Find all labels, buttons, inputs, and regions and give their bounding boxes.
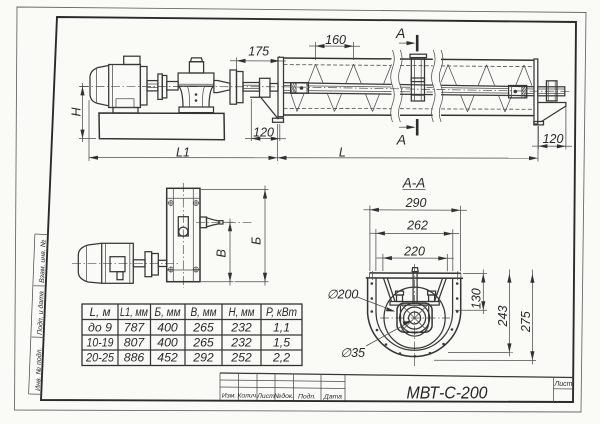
svg-text:175: 175 — [248, 44, 269, 58]
svg-text:В, мм: В, мм — [191, 305, 217, 319]
svg-text:Изм.: Изм. — [222, 393, 237, 400]
svg-text:Колич.: Колич. — [237, 393, 258, 400]
svg-text:Б: Б — [250, 237, 264, 245]
svg-text:Дата: Дата — [323, 394, 342, 401]
svg-text:Н: Н — [70, 107, 84, 117]
svg-text:Н, мм: Н, мм — [229, 305, 255, 319]
svg-text:L, м: L, м — [90, 305, 112, 319]
svg-text:1,1: 1,1 — [273, 321, 290, 335]
svg-text:Б, мм: Б, мм — [155, 305, 181, 319]
svg-text:452: 452 — [157, 351, 178, 365]
svg-text:220: 220 — [403, 244, 425, 258]
svg-text:400: 400 — [157, 336, 178, 350]
svg-text:МВТ-С-200: МВТ-С-200 — [407, 383, 488, 403]
svg-text:120: 120 — [543, 132, 564, 146]
svg-text:Р, кВт: Р, кВт — [266, 305, 297, 319]
svg-text:265: 265 — [192, 321, 214, 335]
svg-text:Инв. № подл.: Инв. № подл. — [34, 347, 44, 391]
svg-text:В: В — [215, 249, 229, 257]
svg-text:886: 886 — [124, 351, 145, 365]
svg-text:130: 130 — [470, 288, 484, 309]
svg-text:232: 232 — [230, 336, 252, 350]
svg-text:787: 787 — [124, 321, 146, 335]
svg-text:160: 160 — [325, 33, 346, 47]
svg-text:∅35: ∅35 — [340, 346, 365, 360]
svg-text:до 9: до 9 — [88, 321, 112, 335]
svg-text:Подп.: Подп. — [298, 392, 316, 400]
svg-text:Лист: Лист — [553, 381, 572, 388]
svg-text:807: 807 — [124, 336, 146, 350]
svg-text:292: 292 — [192, 351, 214, 365]
svg-text:265: 265 — [192, 336, 214, 350]
svg-text:А: А — [396, 131, 406, 147]
svg-text:А: А — [395, 25, 405, 41]
svg-text:Лист: Лист — [256, 393, 275, 400]
svg-text:L1, мм: L1, мм — [120, 305, 148, 319]
svg-text:243: 243 — [496, 306, 510, 328]
svg-text:400: 400 — [157, 321, 178, 335]
svg-text:Подп. и дата: Подп. и дата — [36, 291, 46, 335]
svg-text:2,2: 2,2 — [272, 351, 290, 365]
svg-text:1,5: 1,5 — [273, 336, 290, 350]
svg-text:10-19: 10-19 — [87, 336, 114, 350]
svg-text:20-25: 20-25 — [85, 351, 114, 365]
svg-text:∅200: ∅200 — [327, 288, 359, 302]
svg-text:L: L — [339, 146, 346, 160]
svg-text:262: 262 — [406, 219, 428, 233]
svg-text:№док.: №док. — [274, 392, 294, 400]
svg-text:232: 232 — [230, 321, 252, 335]
svg-text:L1: L1 — [176, 145, 190, 159]
svg-text:А-А: А-А — [402, 176, 426, 191]
svg-text:275: 275 — [519, 311, 533, 333]
svg-text:120: 120 — [253, 126, 274, 140]
svg-text:290: 290 — [405, 196, 427, 210]
svg-text:252: 252 — [230, 351, 252, 365]
